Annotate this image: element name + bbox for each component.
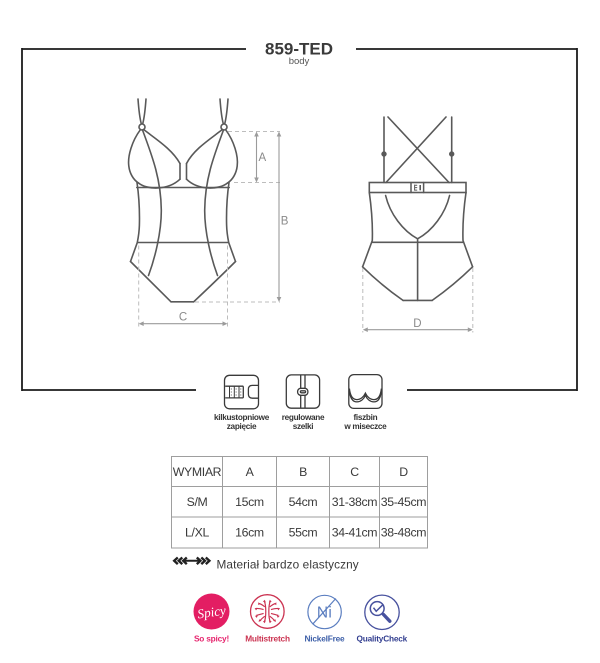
svg-text:WYMIAR: WYMIAR xyxy=(173,465,222,479)
svg-text:S/M: S/M xyxy=(187,495,208,509)
svg-text:fiszbin: fiszbin xyxy=(353,413,377,422)
svg-text:34-41cm: 34-41cm xyxy=(332,526,377,540)
svg-text:D: D xyxy=(399,465,408,479)
svg-text:16cm: 16cm xyxy=(235,526,264,540)
svg-text:55cm: 55cm xyxy=(289,526,318,540)
svg-text:35-45cm: 35-45cm xyxy=(381,495,426,509)
svg-text:QualityCheck: QualityCheck xyxy=(356,634,407,644)
svg-text:54cm: 54cm xyxy=(289,495,318,509)
svg-text:w miseczce: w miseczce xyxy=(343,422,387,431)
svg-text:regulowane: regulowane xyxy=(282,413,325,422)
svg-text:Materiał bardzo elastyczny: Materiał bardzo elastyczny xyxy=(217,557,359,571)
svg-text:C: C xyxy=(350,465,359,479)
svg-text:So spicy!: So spicy! xyxy=(194,634,229,644)
svg-text:B: B xyxy=(299,465,307,479)
svg-text:Multistretch: Multistretch xyxy=(245,634,290,644)
svg-text:body: body xyxy=(289,56,310,67)
svg-text:31-38cm: 31-38cm xyxy=(332,495,377,509)
svg-text:kilkustopniowe: kilkustopniowe xyxy=(214,413,270,422)
svg-text:szelki: szelki xyxy=(293,422,314,431)
svg-text:Ni: Ni xyxy=(317,605,332,622)
svg-text:A: A xyxy=(246,465,255,479)
svg-text:15cm: 15cm xyxy=(235,495,264,509)
svg-text:38-48cm: 38-48cm xyxy=(381,526,426,540)
svg-text:B: B xyxy=(281,216,289,228)
svg-text:NickelFree: NickelFree xyxy=(305,634,346,644)
svg-text:D: D xyxy=(413,318,421,330)
svg-text:C: C xyxy=(179,312,187,324)
svg-text:zapięcie: zapięcie xyxy=(227,422,257,431)
svg-text:L/XL: L/XL xyxy=(185,526,209,540)
svg-text:A: A xyxy=(259,152,267,164)
